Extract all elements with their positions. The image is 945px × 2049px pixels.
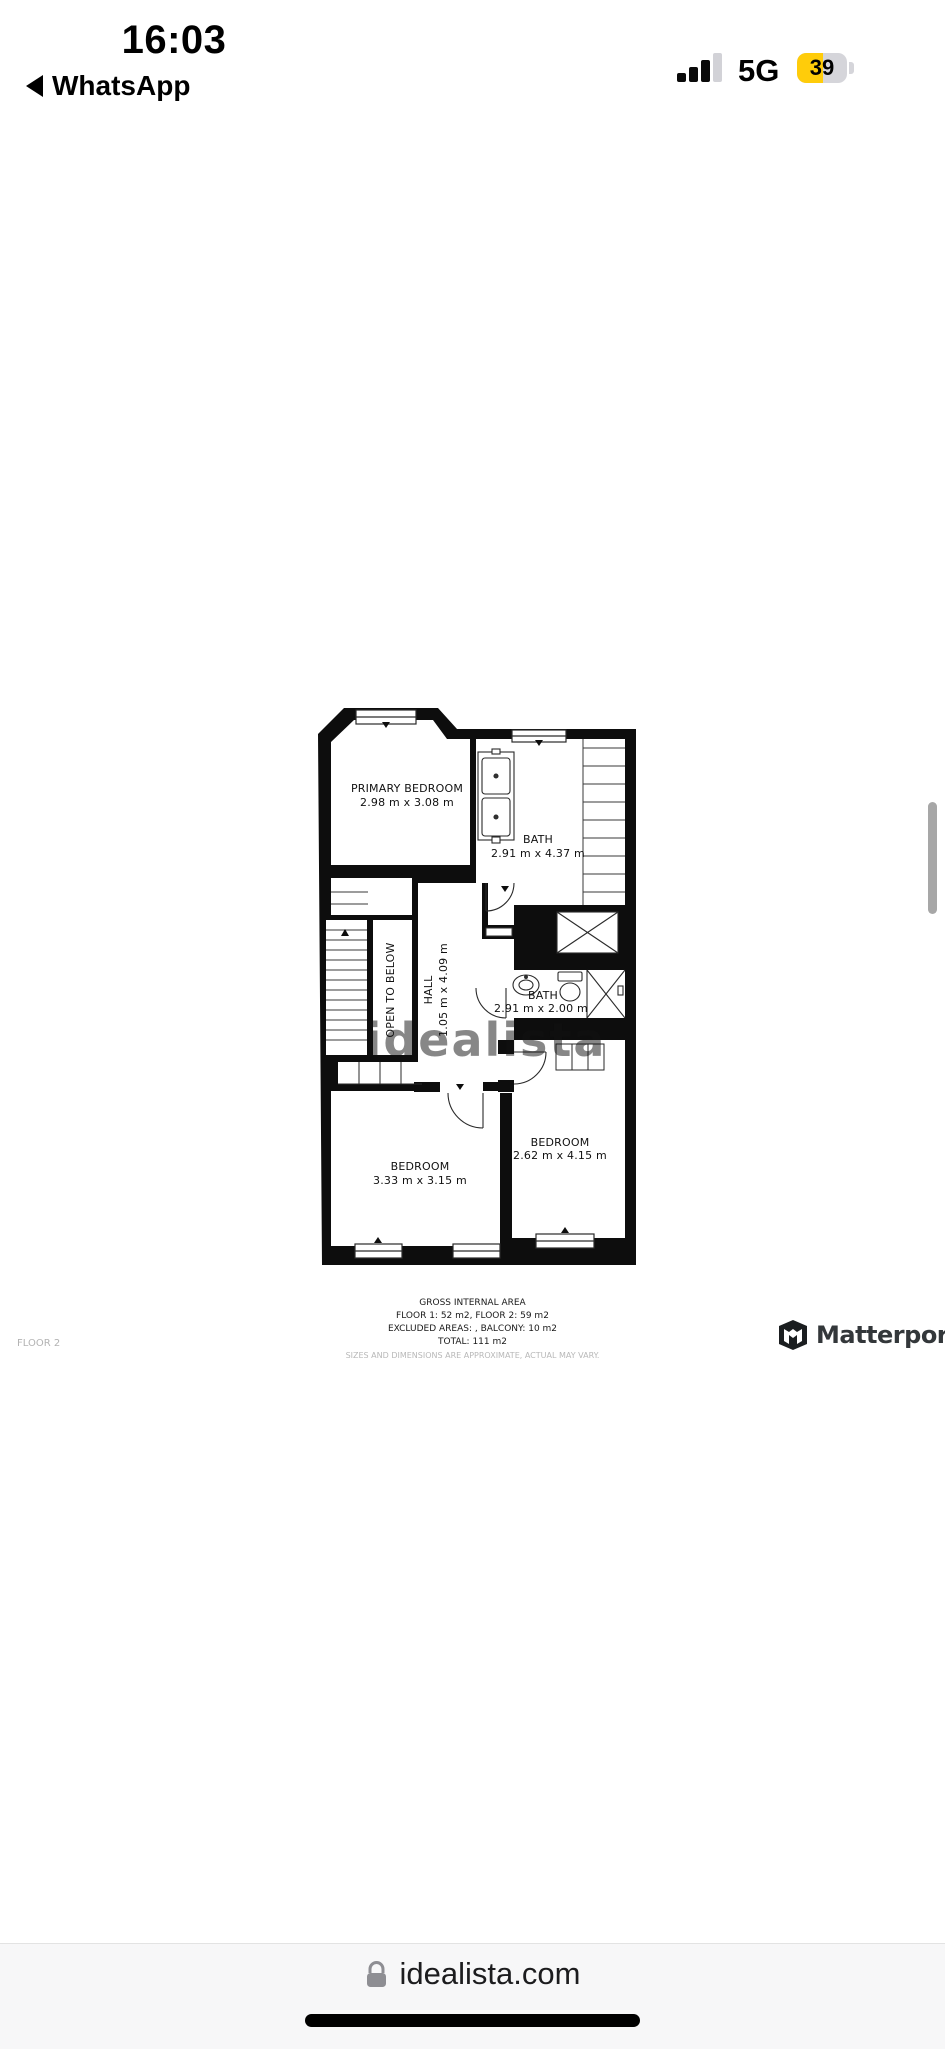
matterport-logo: Matterport bbox=[778, 1320, 945, 1350]
room-label-bedroom-right: BEDROOM bbox=[531, 1136, 590, 1149]
back-app-label: WhatsApp bbox=[52, 70, 190, 102]
idealista-watermark: idealista bbox=[366, 1013, 607, 1067]
battery-cap bbox=[849, 62, 854, 74]
lock-icon bbox=[365, 1961, 388, 1988]
room-label-bath-top: BATH bbox=[523, 833, 553, 846]
room-label-primary-bedroom: PRIMARY BEDROOM bbox=[351, 782, 463, 795]
room-label-bedroom-left: BEDROOM bbox=[391, 1160, 450, 1173]
room-label-hall: HALL bbox=[422, 975, 435, 1005]
cellular-signal-icon bbox=[677, 53, 723, 82]
area-summary-disclaimer: SIZES AND DIMENSIONS ARE APPROXIMATE, AC… bbox=[0, 1349, 945, 1362]
room-dims-bath-top: 2.91 m x 4.37 m bbox=[491, 847, 585, 860]
room-dims-primary-bedroom: 2.98 m x 3.08 m bbox=[360, 796, 454, 809]
status-time: 16:03 bbox=[118, 18, 230, 63]
matterport-wordmark: Matterport bbox=[816, 1321, 945, 1349]
matterport-icon bbox=[778, 1320, 808, 1350]
room-label-bath-mid: BATH bbox=[528, 989, 558, 1002]
vanity-icon bbox=[478, 749, 514, 843]
home-indicator[interactable] bbox=[305, 2014, 640, 2027]
battery-icon: 39 bbox=[797, 53, 847, 83]
network-type-label: 5G bbox=[738, 53, 779, 89]
url-text: idealista.com bbox=[400, 1956, 581, 1992]
toilet-icon bbox=[558, 972, 582, 1001]
browser-url-bar[interactable]: idealista.com bbox=[0, 1943, 945, 2049]
back-arrow-icon bbox=[26, 75, 43, 97]
room-dims-bedroom-left: 3.33 m x 3.15 m bbox=[373, 1174, 467, 1187]
floor-number-label: FLOOR 2 bbox=[17, 1338, 60, 1349]
doorway-inset bbox=[486, 928, 512, 936]
area-summary-title: GROSS INTERNAL AREA bbox=[0, 1297, 945, 1310]
floor-plan-image[interactable]: PRIMARY BEDROOM 2.98 m x 3.08 m BATH 2.9… bbox=[310, 700, 650, 1280]
page-scrollbar-thumb[interactable] bbox=[928, 802, 937, 914]
back-to-whatsapp-link[interactable]: WhatsApp bbox=[26, 70, 190, 102]
battery-percent: 39 bbox=[797, 53, 847, 83]
room-dims-bedroom-right: 2.62 m x 4.15 m bbox=[513, 1149, 607, 1162]
